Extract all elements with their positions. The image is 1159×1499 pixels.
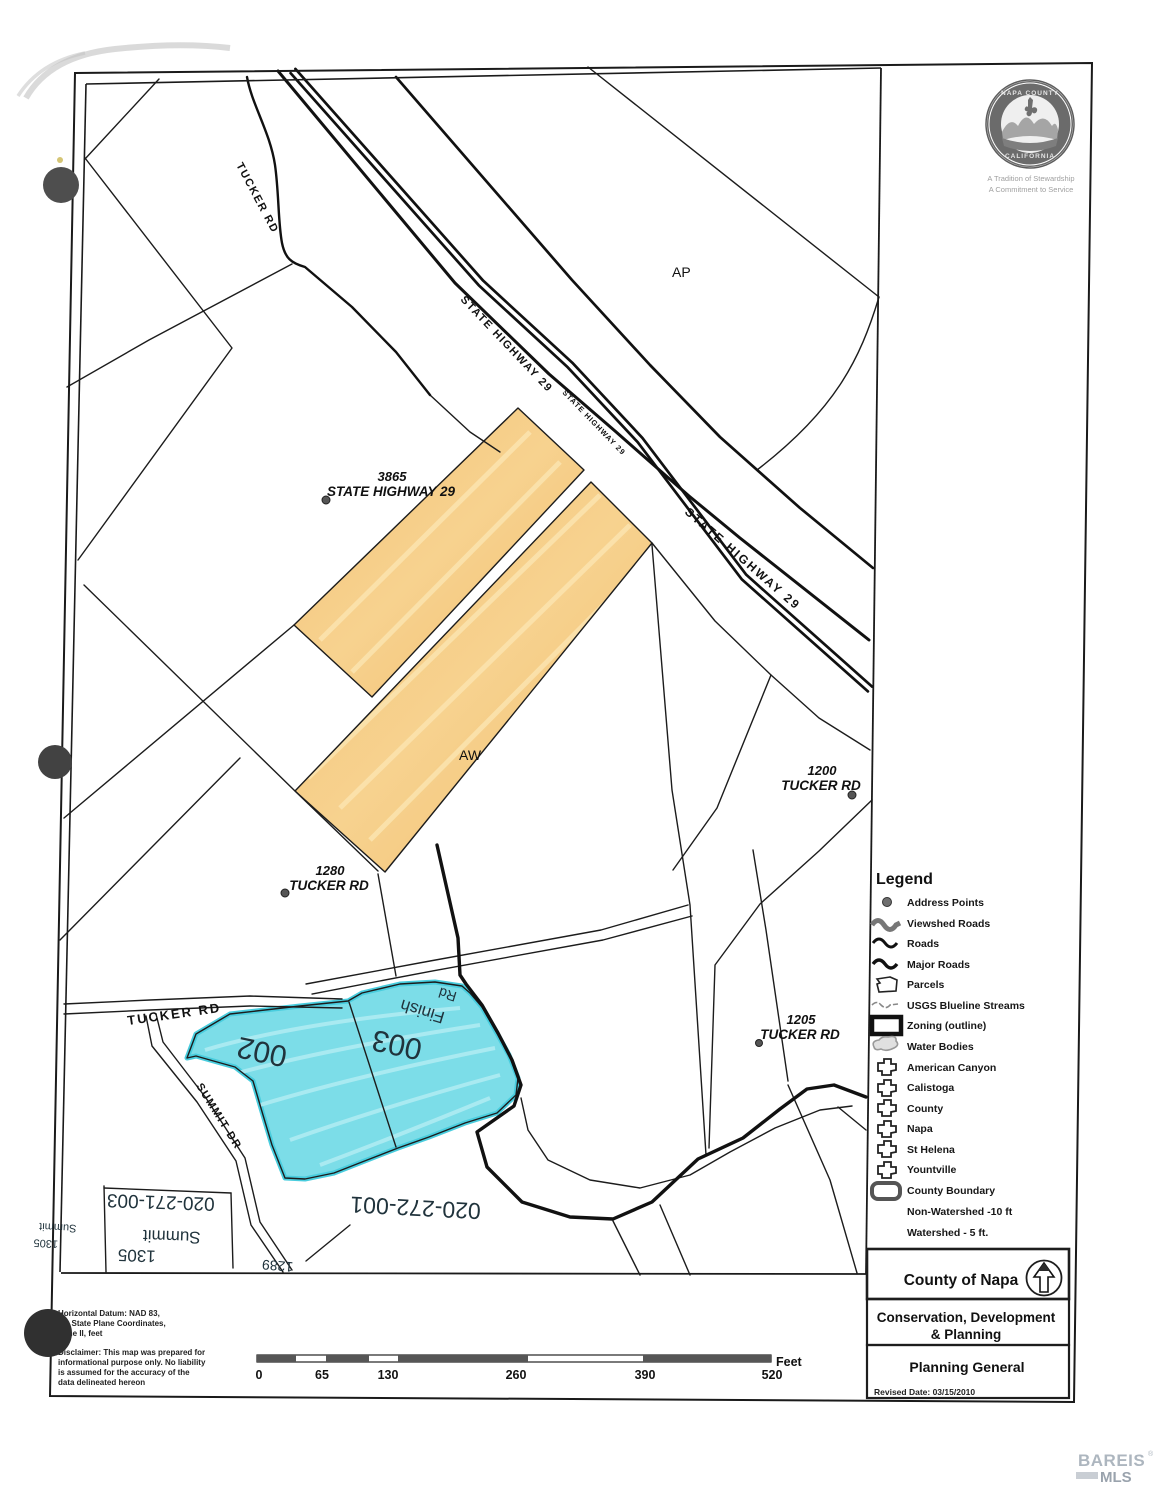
svg-text:Roads: Roads: [907, 938, 939, 950]
svg-text:County: County: [907, 1103, 943, 1115]
svg-text:& Planning: & Planning: [931, 1327, 1002, 1342]
svg-text:AW: AW: [459, 747, 482, 763]
svg-text:CA State Plane Coordinates,: CA State Plane Coordinates,: [58, 1319, 166, 1328]
svg-text:Conservation, Development: Conservation, Development: [877, 1310, 1056, 1325]
svg-text:Legend: Legend: [876, 871, 933, 888]
svg-text:0: 0: [256, 1368, 263, 1382]
svg-text:1305: 1305: [33, 1236, 58, 1249]
svg-text:County of Napa: County of Napa: [904, 1272, 1019, 1289]
svg-text:Horizontal Datum: NAD 83,: Horizontal Datum: NAD 83,: [58, 1309, 160, 1318]
svg-text:Yountville: Yountville: [907, 1164, 957, 1176]
svg-text:American Canyon: American Canyon: [907, 1062, 996, 1074]
svg-text:TUCKER RD: TUCKER RD: [760, 1027, 840, 1042]
svg-text:Watershed - 5 ft.: Watershed - 5 ft.: [907, 1227, 988, 1239]
svg-text:Planning General: Planning General: [909, 1359, 1024, 1375]
svg-text:390: 390: [635, 1368, 656, 1382]
svg-text:TUCKER RD: TUCKER RD: [233, 161, 280, 236]
svg-text:®: ®: [1148, 1450, 1154, 1458]
svg-text:1205: 1205: [787, 1012, 817, 1027]
svg-text:020-272-001: 020-272-001: [350, 1192, 482, 1225]
svg-text:Summit: Summit: [142, 1226, 201, 1247]
svg-text:130: 130: [378, 1368, 399, 1382]
svg-text:1280: 1280: [316, 863, 346, 878]
svg-text:informational purpose only. N: informational purpose only. No liability: [58, 1358, 206, 1367]
svg-text:St Helena: St Helena: [907, 1144, 955, 1156]
svg-text:1305: 1305: [118, 1245, 156, 1265]
svg-text:3865: 3865: [378, 469, 408, 484]
svg-text:Viewshed Roads: Viewshed Roads: [907, 918, 990, 930]
svg-text:1200: 1200: [808, 763, 838, 778]
svg-text:Zoning (outline): Zoning (outline): [907, 1020, 986, 1032]
svg-text:County Boundary: County Boundary: [907, 1185, 995, 1197]
svg-text:A Tradition of Stewardship: A Tradition of Stewardship: [987, 174, 1074, 183]
svg-text:Revised Date: 03/15/2010: Revised Date: 03/15/2010: [874, 1387, 975, 1397]
svg-text:1289: 1289: [261, 1257, 294, 1276]
svg-text:CALIFORNIA: CALIFORNIA: [1005, 153, 1055, 160]
svg-text:520: 520: [762, 1368, 783, 1382]
svg-text:Feet: Feet: [776, 1355, 803, 1369]
svg-text:A Commitment to Service: A Commitment to Service: [989, 185, 1074, 194]
svg-text:Napa: Napa: [907, 1123, 933, 1135]
svg-text:STATE HIGHWAY 29: STATE HIGHWAY 29: [682, 505, 803, 613]
svg-text:Summit: Summit: [39, 1220, 77, 1234]
svg-text:BAREIS: BAREIS: [1078, 1451, 1145, 1470]
svg-text:USGS Blueline Streams: USGS Blueline Streams: [907, 1000, 1025, 1012]
svg-text:260: 260: [506, 1368, 527, 1382]
svg-text:TUCKER RD: TUCKER RD: [126, 1000, 222, 1028]
svg-text:TUCKER RD: TUCKER RD: [781, 778, 861, 793]
svg-text:65: 65: [315, 1368, 329, 1382]
svg-text:TUCKER RD: TUCKER RD: [289, 878, 369, 893]
svg-text:AP: AP: [672, 264, 691, 280]
svg-text:Major Roads: Major Roads: [907, 959, 970, 971]
svg-text:020-271-003: 020-271-003: [107, 1189, 215, 1214]
svg-text:Disclaimer: This map was prepa: Disclaimer: This map was prepared for: [58, 1348, 205, 1357]
svg-text:MLS: MLS: [1100, 1469, 1132, 1486]
svg-text:Water Bodies: Water Bodies: [907, 1041, 974, 1053]
svg-text:SUMMIT DR: SUMMIT DR: [193, 1081, 243, 1152]
svg-text:NAPA COUNTY: NAPA COUNTY: [1001, 90, 1059, 97]
svg-text:Parcels: Parcels: [907, 979, 945, 991]
svg-text:Calistoga: Calistoga: [907, 1082, 954, 1094]
svg-text:STATE HIGHWAY 29: STATE HIGHWAY 29: [327, 484, 456, 499]
svg-text:is assumed for the accuracy of: is assumed for the accuracy of the: [58, 1368, 190, 1377]
svg-text:STATE HIGHWAY 29: STATE HIGHWAY 29: [561, 388, 628, 457]
svg-text:Address Points: Address Points: [907, 897, 984, 909]
svg-text:data delineated hereon: data delineated hereon: [58, 1378, 145, 1387]
svg-text:Non-Watershed -10 ft: Non-Watershed -10 ft: [907, 1206, 1013, 1218]
